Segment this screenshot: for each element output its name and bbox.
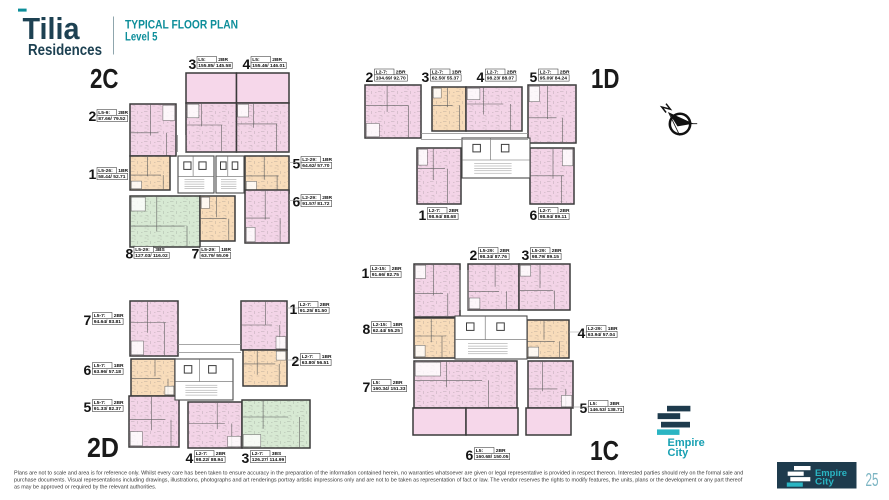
svg-text:2BR: 2BR	[560, 69, 570, 75]
svg-text:1BR: 1BR	[221, 247, 231, 253]
svg-text:1C: 1C	[590, 435, 619, 466]
svg-text:purchase documents. Visual rep: purchase documents. Visual representatio…	[14, 478, 743, 484]
svg-text:4: 4	[186, 450, 194, 466]
svg-text:98.23/ 88.07: 98.23/ 88.07	[487, 76, 514, 82]
svg-text:63.94/ 57.04: 63.94/ 57.04	[588, 332, 615, 338]
svg-text:1BR: 1BR	[608, 326, 618, 332]
svg-text:2BR: 2BR	[320, 302, 330, 308]
svg-text:91.33/ 82.37: 91.33/ 82.37	[94, 406, 121, 412]
svg-text:2BR: 2BR	[392, 266, 402, 272]
svg-text:98.94/ 88.68: 98.94/ 88.68	[429, 214, 456, 220]
svg-text:3BR: 3BR	[610, 401, 620, 407]
svg-text:2BR: 2BR	[118, 110, 128, 116]
svg-text:160.34/ 151.33: 160.34/ 151.33	[373, 386, 406, 392]
svg-text:2: 2	[89, 108, 97, 124]
svg-text:91.25/ 81.50: 91.25/ 81.50	[300, 308, 327, 314]
svg-text:104.69/ 92.70: 104.69/ 92.70	[376, 76, 406, 82]
svg-text:2BR: 2BR	[396, 69, 406, 75]
svg-text:6: 6	[466, 447, 474, 463]
svg-text:127.03/ 116.02: 127.03/ 116.02	[135, 253, 168, 259]
svg-text:3BS: 3BS	[272, 451, 282, 457]
svg-text:1: 1	[290, 301, 298, 317]
svg-text:1BR: 1BR	[393, 322, 403, 328]
svg-text:63.96/ 57.18: 63.96/ 57.18	[94, 369, 121, 375]
svg-text:5: 5	[84, 399, 92, 415]
svg-text:2BR: 2BR	[507, 69, 517, 75]
svg-text:1BR: 1BR	[118, 168, 128, 174]
svg-text:4: 4	[578, 325, 586, 341]
svg-text:155.46/ 146.01: 155.46/ 146.01	[252, 63, 285, 69]
svg-text:3: 3	[522, 247, 530, 263]
svg-text:6: 6	[530, 207, 538, 223]
svg-text:1BR: 1BR	[322, 157, 332, 163]
svg-text:2: 2	[470, 247, 478, 263]
svg-text:2BR: 2BR	[496, 448, 506, 454]
svg-text:as may be approved or required: as may be approved or required by the re…	[14, 485, 157, 491]
svg-text:7: 7	[192, 246, 200, 262]
svg-text:2BR: 2BR	[114, 313, 124, 319]
svg-text:1BR: 1BR	[452, 69, 462, 75]
svg-text:2BR: 2BR	[114, 400, 124, 406]
svg-text:1D: 1D	[591, 63, 620, 94]
svg-text:63.80/ 56.51: 63.80/ 56.51	[302, 360, 329, 366]
svg-text:91.66/ 82.75: 91.66/ 82.75	[372, 272, 399, 278]
svg-text:1BR: 1BR	[114, 363, 124, 369]
svg-text:4: 4	[243, 56, 251, 72]
svg-text:8: 8	[126, 246, 134, 262]
svg-text:25: 25	[866, 470, 879, 490]
svg-text:3BS: 3BS	[155, 247, 165, 253]
svg-text:1: 1	[89, 166, 97, 182]
svg-text:1: 1	[362, 265, 370, 281]
svg-text:98.22/ 88.94: 98.22/ 88.94	[196, 457, 223, 463]
svg-text:1BR: 1BR	[322, 354, 332, 360]
svg-text:3: 3	[189, 56, 197, 72]
svg-text:63.79/ 55.09: 63.79/ 55.09	[201, 253, 228, 259]
svg-text:2BR: 2BR	[449, 208, 459, 214]
svg-text:7: 7	[363, 379, 371, 395]
svg-text:Residences: Residences	[28, 42, 102, 59]
svg-text:3: 3	[242, 450, 250, 466]
svg-text:Tilia: Tilia	[23, 12, 81, 46]
svg-text:5: 5	[580, 400, 588, 416]
svg-text:94.64/ 83.81: 94.64/ 83.81	[94, 319, 121, 325]
svg-text:6: 6	[84, 362, 92, 378]
svg-text:7: 7	[84, 312, 92, 328]
svg-text:City: City	[815, 477, 834, 487]
svg-text:98.94/ 89.11: 98.94/ 89.11	[540, 214, 567, 220]
svg-text:58.44/ 52.71: 58.44/ 52.71	[98, 174, 125, 180]
svg-text:2: 2	[292, 353, 300, 369]
svg-text:5: 5	[293, 156, 301, 172]
svg-text:64.62/ 57.70: 64.62/ 57.70	[302, 163, 329, 169]
svg-text:2D: 2D	[87, 432, 119, 463]
svg-text:3: 3	[422, 69, 430, 85]
svg-text:Plans are not to scale and are: Plans are not to scale and area is for r…	[14, 471, 743, 477]
svg-text:2BR: 2BR	[500, 248, 510, 254]
svg-text:City: City	[668, 447, 690, 459]
svg-text:160.68/ 150.05: 160.68/ 150.05	[476, 454, 509, 460]
svg-text:98.79/ 89.15: 98.79/ 89.15	[532, 254, 559, 260]
svg-text:8: 8	[363, 321, 371, 337]
svg-text:2BR: 2BR	[560, 208, 570, 214]
svg-text:TYPICAL FLOOR PLAN: TYPICAL FLOOR PLAN	[125, 20, 238, 32]
svg-text:2: 2	[366, 69, 374, 85]
svg-text:126.27/ 114.99: 126.27/ 114.99	[252, 457, 285, 463]
svg-text:Level 5: Level 5	[125, 32, 158, 44]
svg-text:2C: 2C	[90, 63, 119, 94]
svg-text:91.57/ 81.72: 91.57/ 81.72	[302, 201, 329, 207]
svg-text:155.85/ 145.58: 155.85/ 145.58	[198, 63, 231, 69]
svg-text:4: 4	[477, 69, 485, 85]
svg-text:62.44/ 55.25: 62.44/ 55.25	[373, 328, 400, 334]
svg-text:98.34/ 87.76: 98.34/ 87.76	[480, 254, 507, 260]
svg-text:95.09/ 84.24: 95.09/ 84.24	[540, 76, 567, 82]
svg-text:6: 6	[293, 194, 301, 210]
svg-text:146.53/ 138.71: 146.53/ 138.71	[590, 407, 623, 413]
svg-text:2BR: 2BR	[272, 57, 282, 63]
svg-text:62.50/ 55.37: 62.50/ 55.37	[432, 76, 459, 82]
svg-text:5: 5	[530, 69, 538, 85]
svg-text:2BR: 2BR	[322, 195, 332, 201]
svg-text:2BR: 2BR	[216, 451, 226, 457]
svg-text:2BR: 2BR	[552, 248, 562, 254]
svg-text:87.66/ 79.52: 87.66/ 79.52	[98, 116, 125, 122]
svg-text:1: 1	[419, 207, 427, 223]
svg-text:2BR: 2BR	[218, 57, 228, 63]
svg-text:2BR: 2BR	[393, 380, 403, 386]
